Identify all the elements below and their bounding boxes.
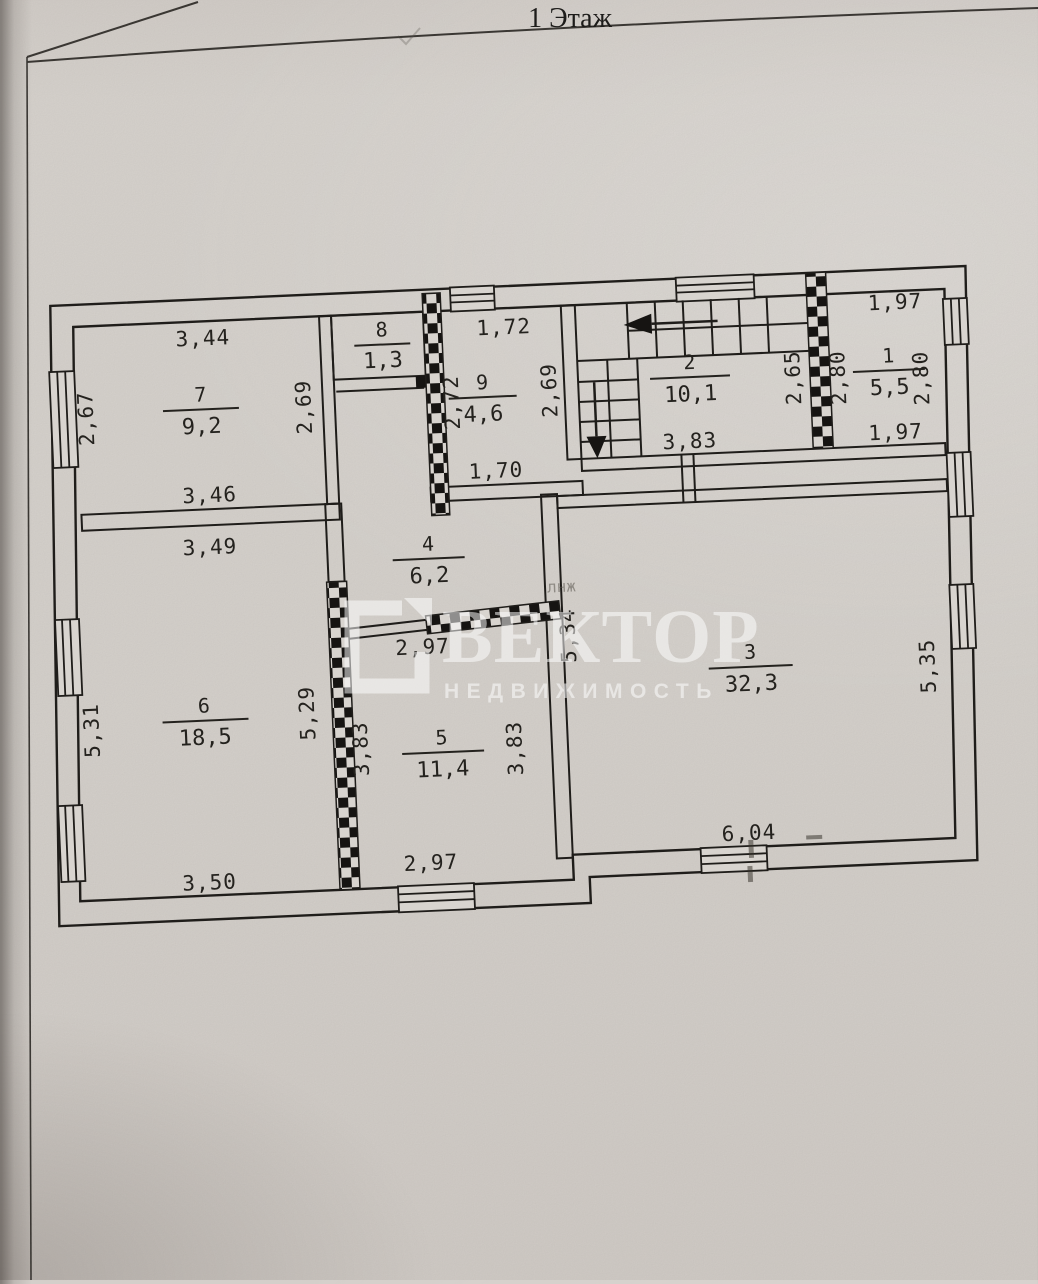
window-room6-left-upper: [55, 619, 82, 696]
dim-r6-left: 5,31: [79, 703, 105, 759]
dim-r5-bottom: 2,97: [403, 850, 459, 876]
room-8-number: 8: [375, 317, 388, 342]
dim-r6-top: 3,49: [182, 534, 238, 560]
window-top-room2: [676, 274, 755, 301]
watermark-subtitle: НЕДВИЖИМОСТЬ: [444, 680, 719, 703]
dim-r9-right: 2,69: [536, 363, 562, 419]
room-1-area: 5,5: [869, 375, 910, 402]
dim-r6-right: 5,29: [294, 685, 320, 741]
room-4-area: 6,2: [409, 563, 450, 590]
room-5-area: 11,4: [416, 756, 470, 783]
room-9-area: 4,6: [463, 401, 504, 428]
window-bottom-room5: [398, 883, 475, 912]
dim-r9-left: 2,72: [439, 375, 465, 431]
room-9-number: 9: [475, 370, 488, 395]
window-bottom-room3: [701, 845, 768, 873]
dim-r1-top: 1,97: [867, 289, 923, 315]
dim-r7-bottom: 3,46: [182, 482, 238, 508]
dim-r9-top: 1,72: [476, 314, 532, 340]
dim-r7-top: 3,44: [175, 325, 231, 351]
dim-r2-bottom: 3,83: [662, 428, 718, 454]
room-8-area: 1,3: [363, 348, 404, 375]
window-room6-left-lower: [58, 805, 85, 882]
window-top-room9: [450, 286, 495, 312]
dim-r1-bottom: 1,97: [868, 419, 924, 445]
dim-r1-right: 2,80: [908, 350, 934, 406]
room-2-number: 2: [683, 350, 696, 375]
window-room1-right: [943, 298, 969, 345]
room-7-number: 7: [194, 382, 207, 407]
floor-plan-scan: 1 Этаж: [0, 0, 1038, 1280]
dim-r7-right: 2,69: [291, 379, 317, 435]
window-room3-right-lower: [949, 584, 976, 649]
dim-r9-bottom: 1,70: [468, 458, 524, 484]
dim-r7-left: 2,67: [73, 391, 99, 447]
room-5-number: 5: [435, 725, 448, 750]
room-6-number: 6: [197, 693, 210, 718]
room-7-area: 9,2: [181, 414, 222, 441]
dim-r3-right: 5,35: [915, 638, 941, 694]
page-title: 1 Этаж: [528, 3, 612, 34]
dim-r5-right: 3,83: [502, 720, 528, 776]
room-4-number: 4: [421, 531, 434, 556]
wall-joint: [416, 376, 427, 388]
faint-note: лнж: [547, 576, 577, 596]
window-room3-right-upper: [947, 452, 974, 517]
room-2-area: 10,1: [664, 381, 718, 408]
dim-r1-left: 2,80: [825, 350, 851, 406]
dim-r5-left: 3,83: [348, 721, 374, 777]
dim-r6-bottom: 3,50: [182, 869, 238, 895]
watermark-brand: ВЕКТОР: [442, 595, 760, 679]
room-6-area: 18,5: [178, 724, 232, 751]
room-1-number: 1: [882, 343, 895, 368]
dim-r2-right: 2,65: [780, 350, 806, 406]
